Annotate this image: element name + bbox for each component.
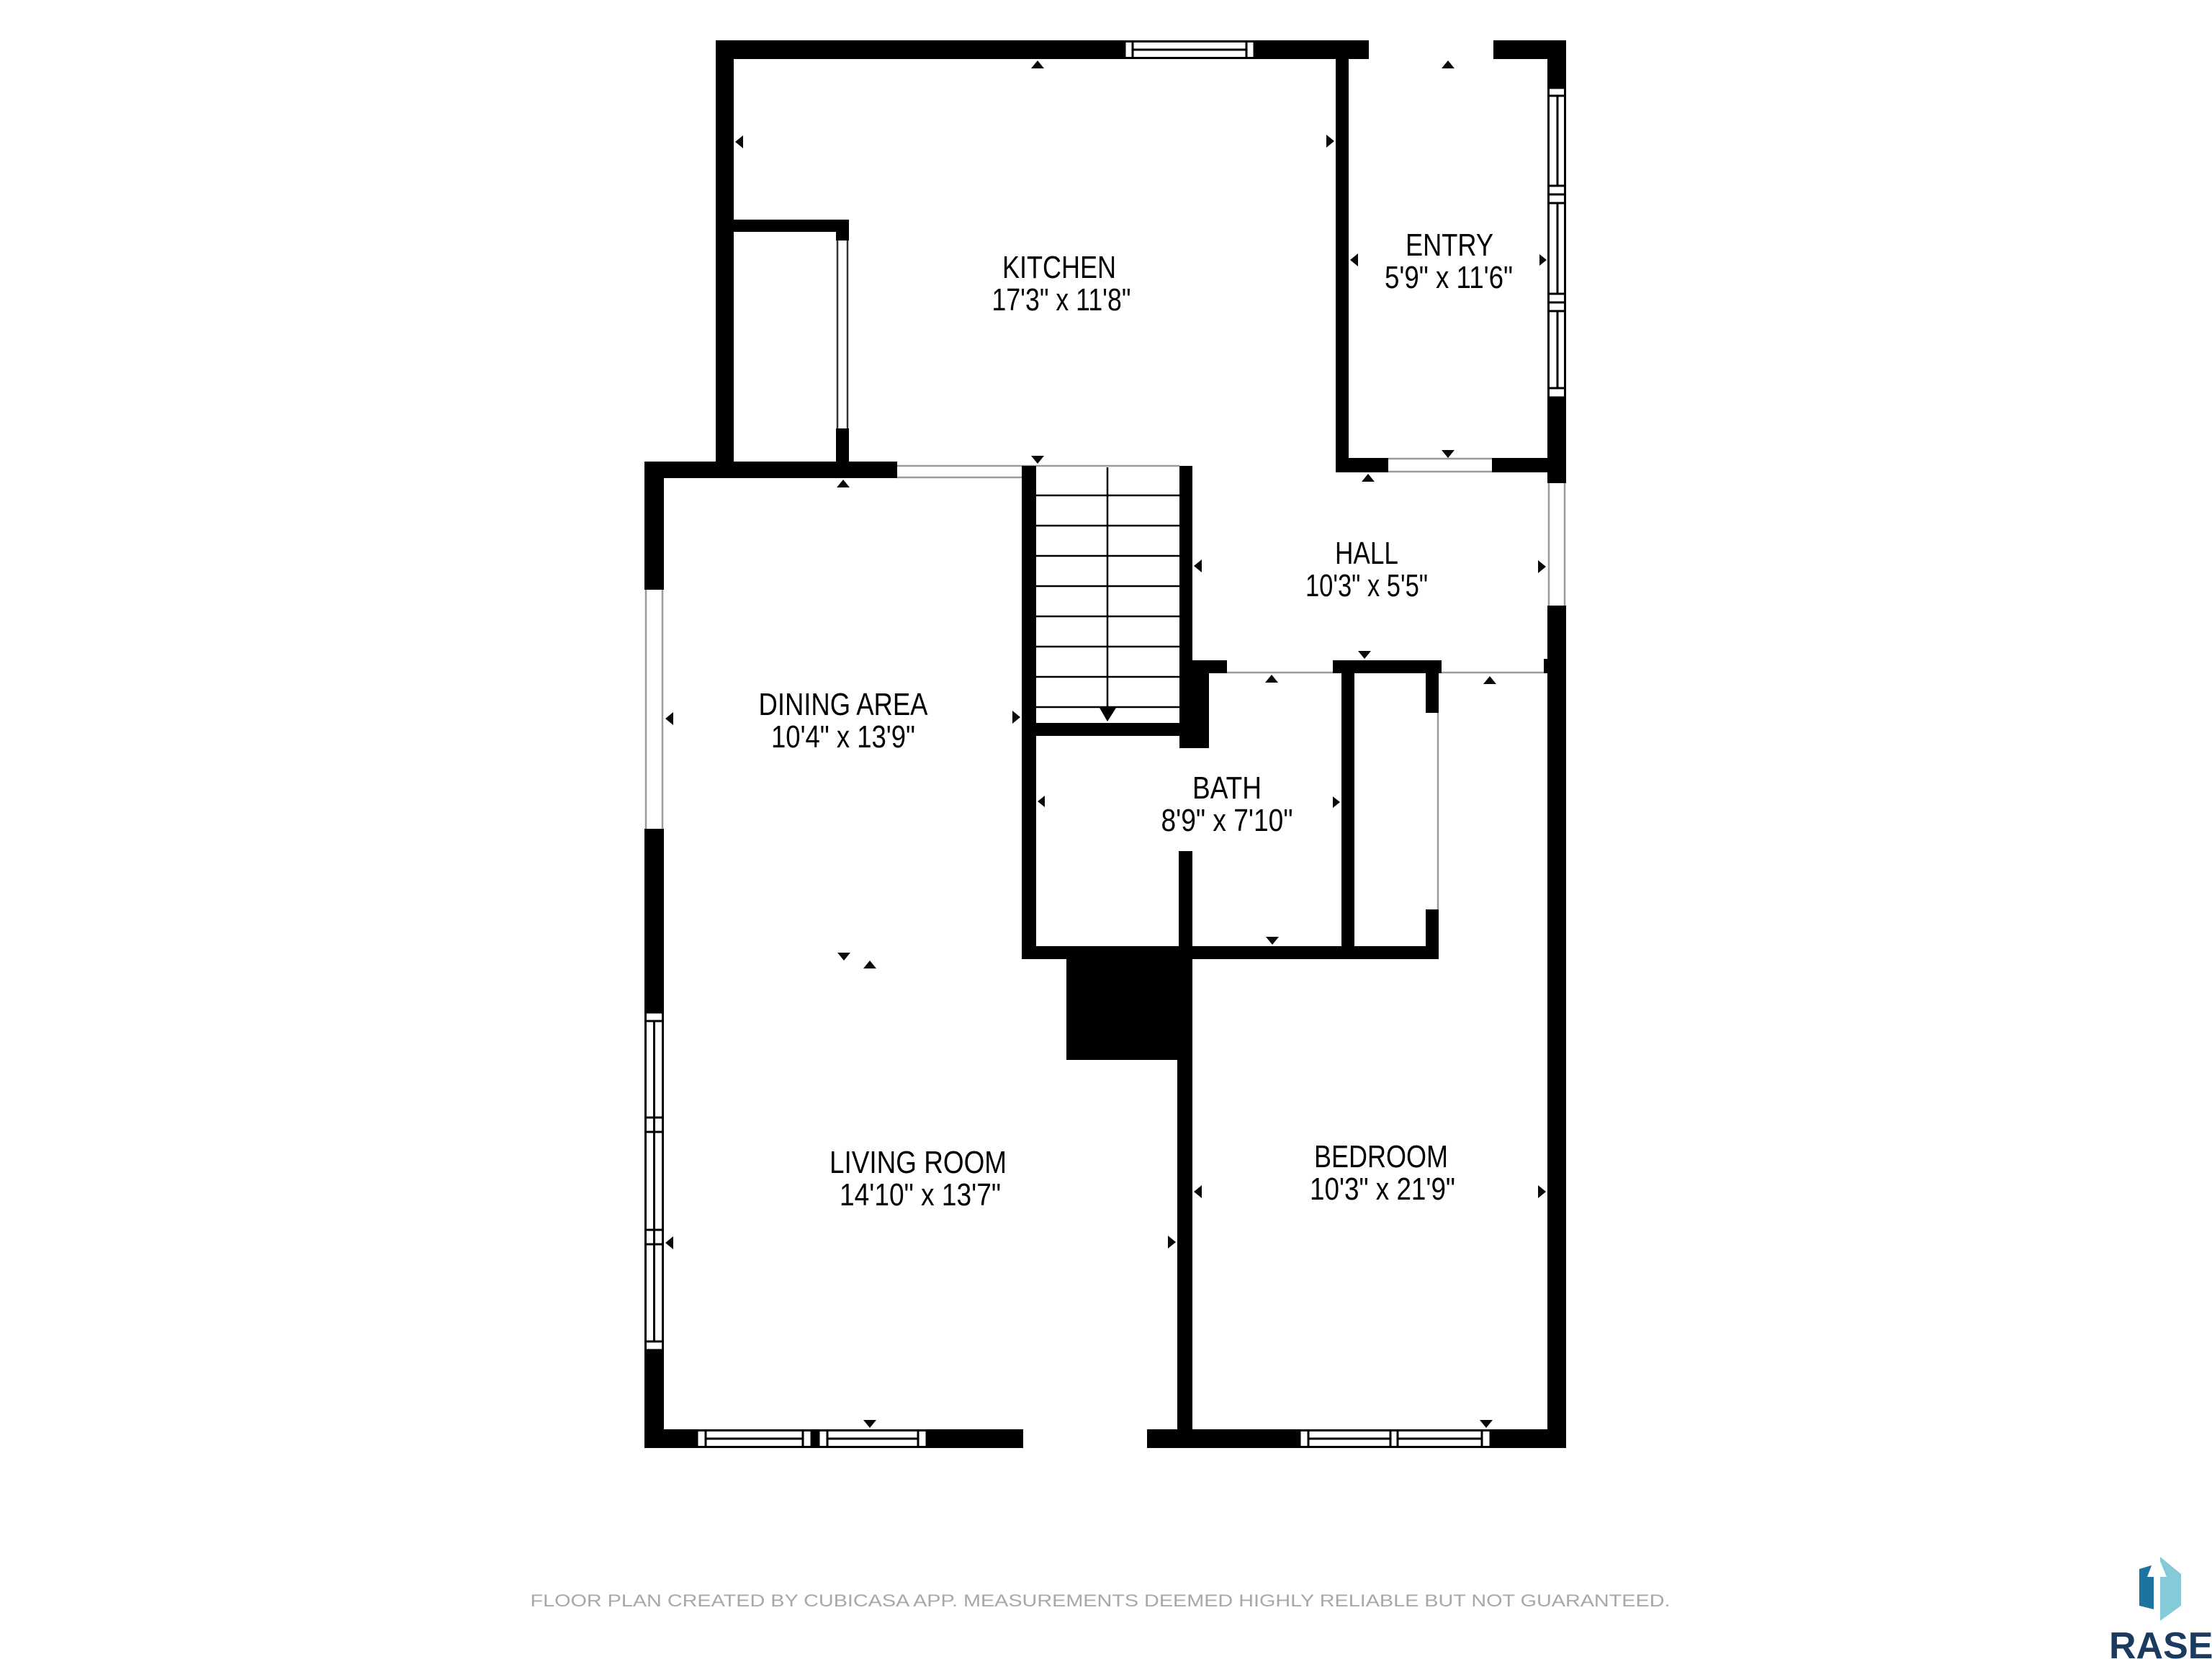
svg-text:14'10" x 13'7": 14'10" x 13'7" [840, 1177, 1001, 1213]
svg-text:KITCHEN: KITCHEN [1002, 250, 1116, 285]
svg-text:HALL: HALL [1335, 536, 1398, 571]
svg-text:BEDROOM: BEDROOM [1314, 1139, 1448, 1174]
svg-text:LIVING ROOM: LIVING ROOM [829, 1145, 1007, 1180]
svg-text:ENTRY: ENTRY [1406, 228, 1493, 263]
svg-text:17'3" x 11'8": 17'3" x 11'8" [992, 282, 1131, 318]
svg-text:FLOOR PLAN CREATED BY CUBICASA: FLOOR PLAN CREATED BY CUBICASA APP. MEAS… [531, 1591, 1671, 1611]
svg-text:DINING AREA: DINING AREA [759, 687, 929, 722]
svg-text:10'4" x 13'9": 10'4" x 13'9" [771, 719, 915, 755]
svg-text:5'9" x 11'6": 5'9" x 11'6" [1385, 260, 1513, 295]
svg-text:RASE: RASE [2109, 1625, 2212, 1659]
svg-text:10'3" x 21'9": 10'3" x 21'9" [1310, 1172, 1455, 1207]
svg-text:10'3" x 5'5": 10'3" x 5'5" [1305, 568, 1428, 603]
svg-text:8'9" x 7'10": 8'9" x 7'10" [1161, 803, 1293, 838]
svg-text:BATH: BATH [1192, 770, 1262, 806]
